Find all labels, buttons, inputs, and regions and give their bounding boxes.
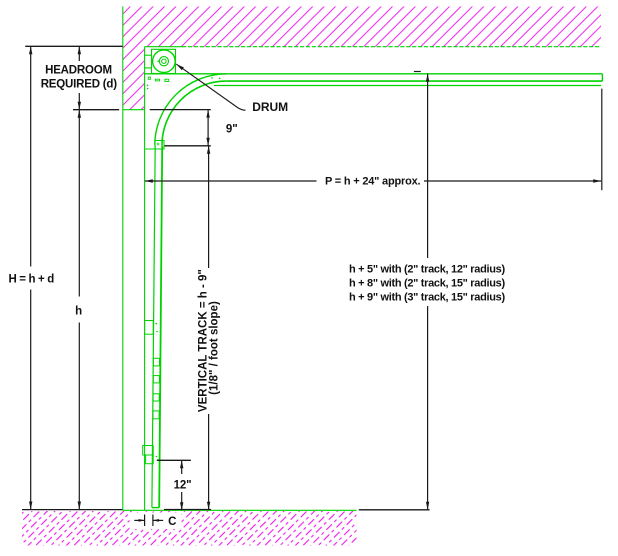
- svg-text:(1/8" / foot slope): (1/8" / foot slope): [209, 301, 221, 395]
- svg-text:REQUIRED (d): REQUIRED (d): [41, 79, 118, 91]
- svg-text:P = h + 24" approx.: P = h + 24" approx.: [325, 176, 421, 188]
- svg-text:H = h + d: H = h + d: [9, 273, 55, 285]
- svg-text:12": 12": [174, 479, 192, 491]
- svg-text:h + 5" with (2" track, 12" rad: h + 5" with (2" track, 12" radius): [349, 264, 505, 276]
- svg-text:9": 9": [226, 124, 238, 136]
- svg-text:h: h: [75, 305, 82, 317]
- svg-text:h + 8" with (2" track, 15" rad: h + 8" with (2" track, 15" radius): [349, 277, 505, 289]
- svg-text:HEADROOM: HEADROOM: [45, 65, 112, 77]
- svg-text:C: C: [168, 516, 176, 528]
- svg-text:DRUM: DRUM: [252, 100, 288, 114]
- svg-text:h + 9" with (3" track, 15" rad: h + 9" with (3" track, 15" radius): [349, 291, 505, 303]
